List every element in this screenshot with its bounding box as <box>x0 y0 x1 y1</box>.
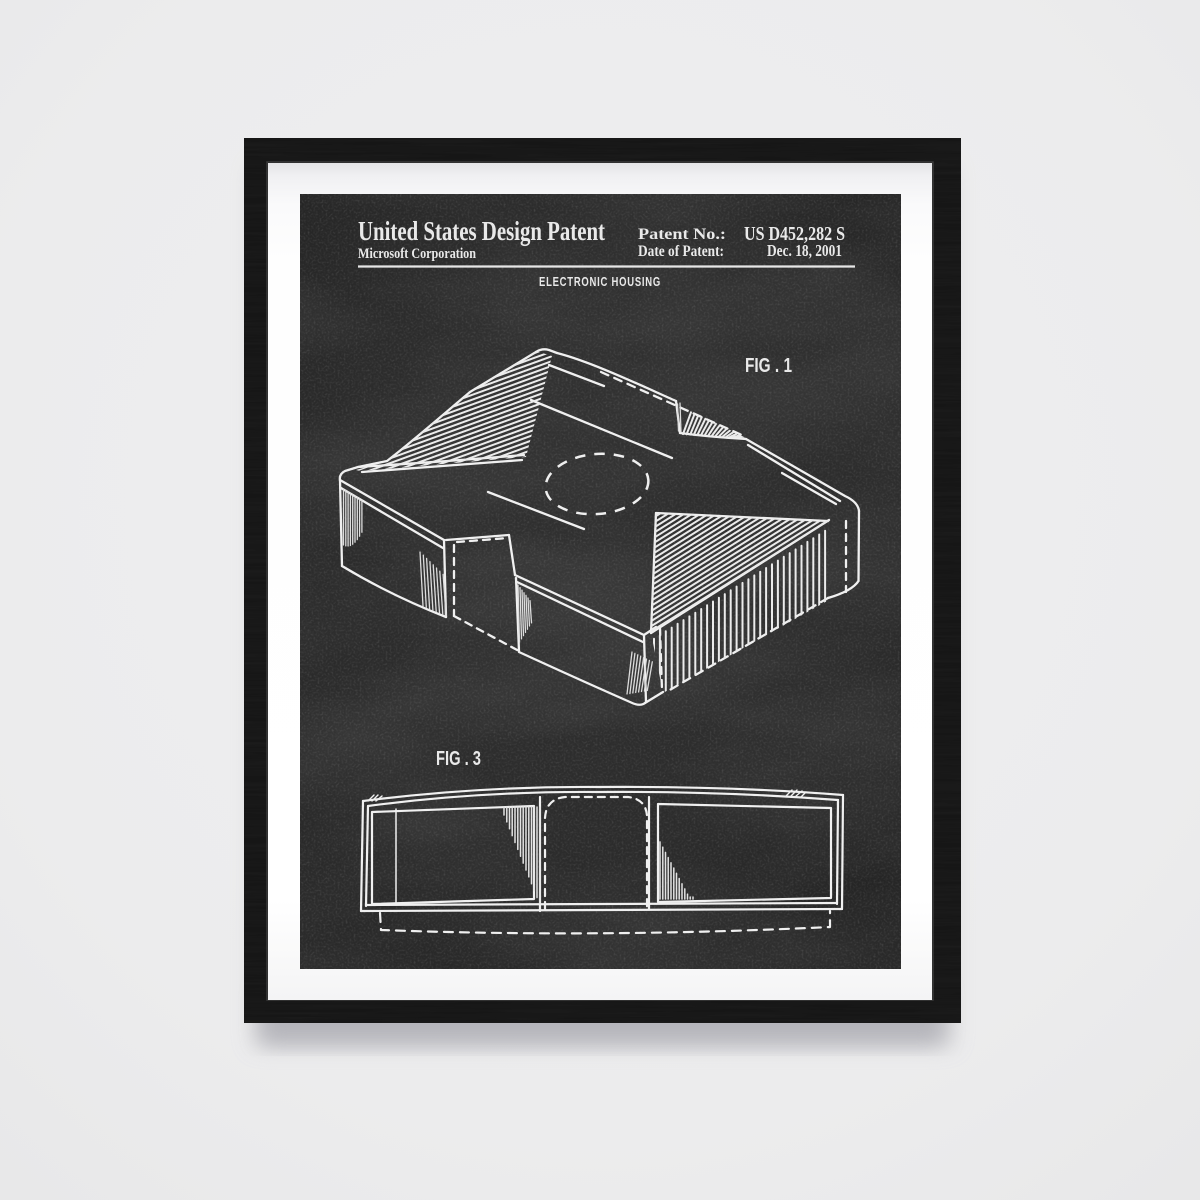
svg-text:ELECTRONIC HOUSING: ELECTRONIC HOUSING <box>539 275 661 289</box>
svg-text:Microsoft Corporation: Microsoft Corporation <box>358 246 477 262</box>
svg-text:FIG . 1: FIG . 1 <box>745 355 792 377</box>
svg-text:Date of Patent:: Date of Patent: <box>638 243 724 260</box>
svg-text:Dec. 18, 2001: Dec. 18, 2001 <box>767 241 842 260</box>
svg-text:FIG . 3: FIG . 3 <box>436 748 481 770</box>
svg-text:Patent No.:: Patent No.: <box>638 226 726 243</box>
svg-text:United States Design Patent: United States Design Patent <box>358 216 605 246</box>
